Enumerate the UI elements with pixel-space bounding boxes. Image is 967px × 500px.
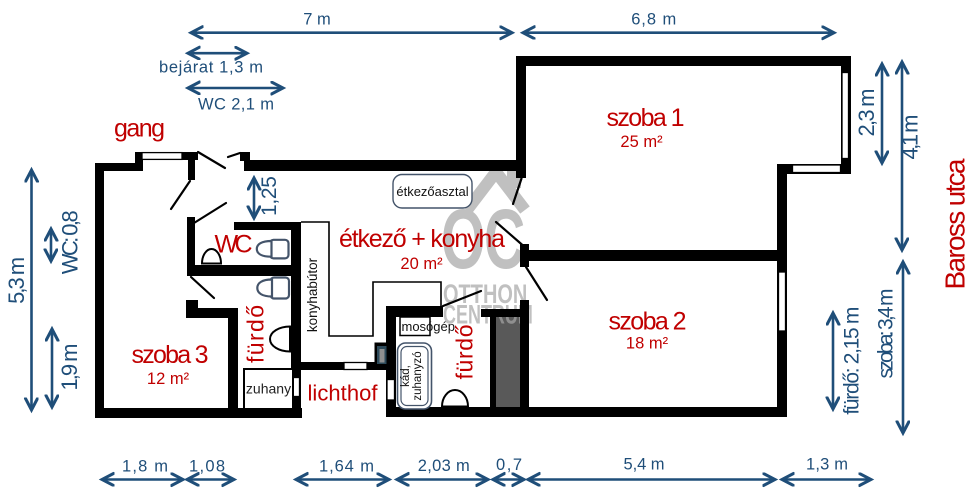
svg-text:Baross utca: Baross utca xyxy=(940,158,967,289)
svg-text:gang: gang xyxy=(114,115,165,143)
svg-text:1,3 m: 1,3 m xyxy=(806,456,848,474)
svg-text:4,1 m: 4,1 m xyxy=(898,115,923,160)
svg-text:WC: WC xyxy=(215,231,253,259)
svg-text:12 m²: 12 m² xyxy=(147,370,190,388)
svg-text:1,64 m: 1,64 m xyxy=(319,458,374,476)
svg-text:lichthof: lichthof xyxy=(308,381,379,406)
svg-text:5,4 m: 5,4 m xyxy=(624,456,665,474)
svg-text:7 m: 7 m xyxy=(303,11,331,29)
svg-text:6,8 m: 6,8 m xyxy=(631,11,676,29)
svg-text:szoba 3: szoba 3 xyxy=(132,341,209,369)
svg-text:fürdő: fürdő xyxy=(452,325,478,380)
svg-text:zuhany: zuhany xyxy=(246,381,291,397)
svg-text:mosógép: mosógép xyxy=(402,319,455,334)
svg-text:kád,: kád, xyxy=(400,365,412,387)
svg-text:bejárat 1,3 m: bejárat 1,3 m xyxy=(159,59,263,77)
svg-text:szoba: 3,4 m: szoba: 3,4 m xyxy=(875,289,898,379)
svg-text:1,25: 1,25 xyxy=(258,176,281,216)
svg-text:fürdő: 2,15 m: fürdő: 2,15 m xyxy=(841,307,864,415)
svg-text:szoba 2: szoba 2 xyxy=(609,308,687,336)
svg-text:5,3 m: 5,3 m xyxy=(4,257,29,304)
svg-text:étkező + konyha: étkező + konyha xyxy=(339,225,505,253)
svg-text:18 m²: 18 m² xyxy=(626,335,669,353)
svg-text:25 m²: 25 m² xyxy=(620,133,663,151)
svg-text:konyhabútor: konyhabútor xyxy=(305,257,320,332)
svg-text:étkezőasztal: étkezőasztal xyxy=(396,184,468,199)
svg-text:WC 2,1 m: WC 2,1 m xyxy=(198,96,274,114)
svg-text:20 m²: 20 m² xyxy=(400,255,443,273)
svg-text:zuhanyzó: zuhanyzó xyxy=(412,351,424,400)
svg-text:WC: 0,8: WC: 0,8 xyxy=(58,210,83,274)
svg-text:2,03 m: 2,03 m xyxy=(418,457,470,475)
svg-text:fürdő: fürdő xyxy=(243,305,269,363)
svg-text:szoba 1: szoba 1 xyxy=(607,104,685,132)
svg-text:1,9 m: 1,9 m xyxy=(57,344,82,391)
svg-text:2,3 m: 2,3 m xyxy=(854,89,879,137)
svg-text:0,7: 0,7 xyxy=(496,456,522,474)
svg-text:1,08: 1,08 xyxy=(189,458,225,476)
svg-text:1,8 m: 1,8 m xyxy=(122,458,168,476)
